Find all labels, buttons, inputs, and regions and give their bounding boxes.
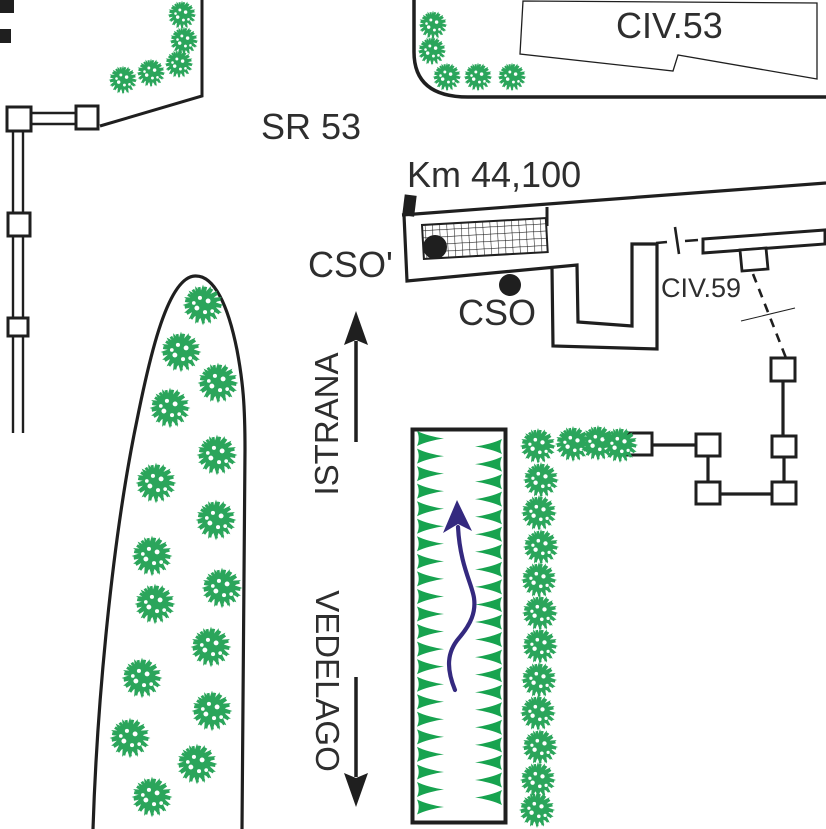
istrana-arrow — [344, 311, 368, 442]
bush-icon — [522, 595, 558, 631]
hedge-triangle-icon — [417, 800, 444, 815]
hedge-triangle-icon — [417, 519, 444, 534]
hedge-triangle-icon — [475, 457, 502, 472]
fence-top-left — [7, 106, 98, 433]
hedge-triangle-icon — [417, 659, 444, 674]
hedge-triangle-icon — [417, 624, 444, 639]
hedge-triangle-icon — [417, 501, 444, 516]
hedge-triangle-icon — [417, 431, 444, 446]
hedge-triangle-icon — [417, 466, 444, 481]
civ53-label: CIV.53 — [616, 5, 723, 46]
hedge-triangle-icon — [475, 667, 502, 682]
hedge-triangle-icon — [475, 562, 502, 577]
hedge-triangle-icon — [417, 484, 444, 499]
hedge-triangle-icon — [417, 571, 444, 586]
hedge-triangle-icon — [475, 773, 502, 788]
istrana-label: ISTRANA — [308, 352, 345, 495]
bush-icon — [168, 1, 197, 30]
bush-icon — [177, 744, 218, 785]
cso-prime-label: CSO' — [308, 244, 393, 285]
bush-icon — [136, 463, 177, 504]
bush-icon — [520, 428, 556, 464]
hedge-triangle-icon — [475, 439, 502, 454]
hedge-triangle-icon — [475, 650, 502, 665]
hedge-triangle-icon — [475, 509, 502, 524]
bush-icon — [521, 495, 557, 531]
bush-icon — [109, 66, 138, 95]
bush-icon — [522, 628, 558, 664]
hedge-triangle-icon — [417, 747, 444, 762]
hedge-triangle-icon — [417, 536, 444, 551]
bush-icon — [122, 658, 163, 699]
bush-icon — [498, 63, 527, 92]
vedelago-arrow — [344, 677, 368, 807]
km-marker-label: Km 44,100 — [407, 154, 581, 195]
frame-corner-marks — [0, 0, 14, 43]
hedge-triangle-icon — [475, 720, 502, 735]
bush-icon — [137, 59, 166, 88]
bush-icon — [150, 388, 191, 429]
hedge-triangle-icon — [475, 474, 502, 489]
bush-icon — [519, 792, 555, 828]
hedge-triangle-icon — [475, 527, 502, 542]
hedge-triangle-icon — [417, 449, 444, 464]
hedge-triangle-icon — [417, 554, 444, 569]
hedge-triangle-icon — [475, 702, 502, 717]
bush-icon — [191, 627, 232, 668]
vegetation-bushes — [109, 1, 638, 828]
hedge-triangle-icon — [417, 642, 444, 657]
cso-prime-point — [423, 235, 447, 259]
bush-icon — [202, 568, 243, 609]
hedge-triangle-icon — [475, 492, 502, 507]
bush-icon — [521, 562, 557, 598]
hedge-triangles — [417, 431, 502, 815]
bush-icon — [197, 435, 238, 476]
hedge-triangle-icon — [417, 765, 444, 780]
hedge-triangle-icon — [475, 544, 502, 559]
bush-icon — [165, 50, 194, 79]
hedge-triangle-icon — [475, 755, 502, 770]
route-arrow — [443, 500, 474, 690]
bush-icon — [523, 529, 559, 565]
hedge-triangle-icon — [475, 597, 502, 612]
bush-icon — [523, 462, 559, 498]
road-name-label: SR 53 — [261, 106, 361, 147]
hedge-triangle-icon — [475, 632, 502, 647]
bush-icon — [170, 27, 199, 56]
vedelago-label: VEDELAGO — [309, 590, 346, 772]
bush-icon — [161, 332, 202, 373]
bush-icon — [520, 695, 556, 731]
bush-icon — [464, 63, 493, 92]
cso-label: CSO — [458, 292, 536, 333]
hedge-triangle-icon — [475, 790, 502, 805]
hedge-triangle-icon — [417, 729, 444, 744]
bush-icon — [183, 285, 224, 326]
site-plan-svg: SR 53 CIV.53 Km 44,100 CSO' CSO CIV.59 I… — [0, 0, 826, 829]
civ59-access — [656, 227, 825, 271]
bush-icon — [419, 11, 448, 40]
bush-icon — [602, 427, 638, 463]
hedge-triangle-icon — [417, 589, 444, 604]
hedge-triangle-icon — [475, 579, 502, 594]
hedge-triangle-icon — [475, 737, 502, 752]
bush-icon — [132, 777, 173, 818]
bush-icon — [433, 63, 462, 92]
bush-icon — [132, 536, 173, 577]
hedge-triangle-icon — [417, 677, 444, 692]
fence-bottom-right — [628, 358, 796, 504]
bush-icon — [196, 500, 237, 541]
hedge-triangle-icon — [475, 615, 502, 630]
hedge-triangle-icon — [475, 685, 502, 700]
civ59-label: CIV.59 — [661, 273, 741, 303]
boundary-dashed-line — [753, 274, 786, 358]
bush-icon — [522, 729, 558, 765]
hedge-triangle-icon — [417, 694, 444, 709]
hedge-triangle-icon — [417, 607, 444, 622]
bush-icon — [418, 37, 447, 66]
bush-icon — [110, 718, 151, 759]
site-plan: SR 53 CIV.53 Km 44,100 CSO' CSO CIV.59 I… — [0, 0, 826, 829]
hedge-triangle-icon — [417, 712, 444, 727]
bush-icon — [198, 363, 239, 404]
bush-icon — [192, 691, 233, 732]
km-post-mark — [402, 194, 416, 216]
bush-icon — [520, 762, 556, 798]
bush-icon — [135, 584, 176, 625]
bush-icon — [521, 662, 557, 698]
hedge-triangle-icon — [417, 782, 444, 797]
